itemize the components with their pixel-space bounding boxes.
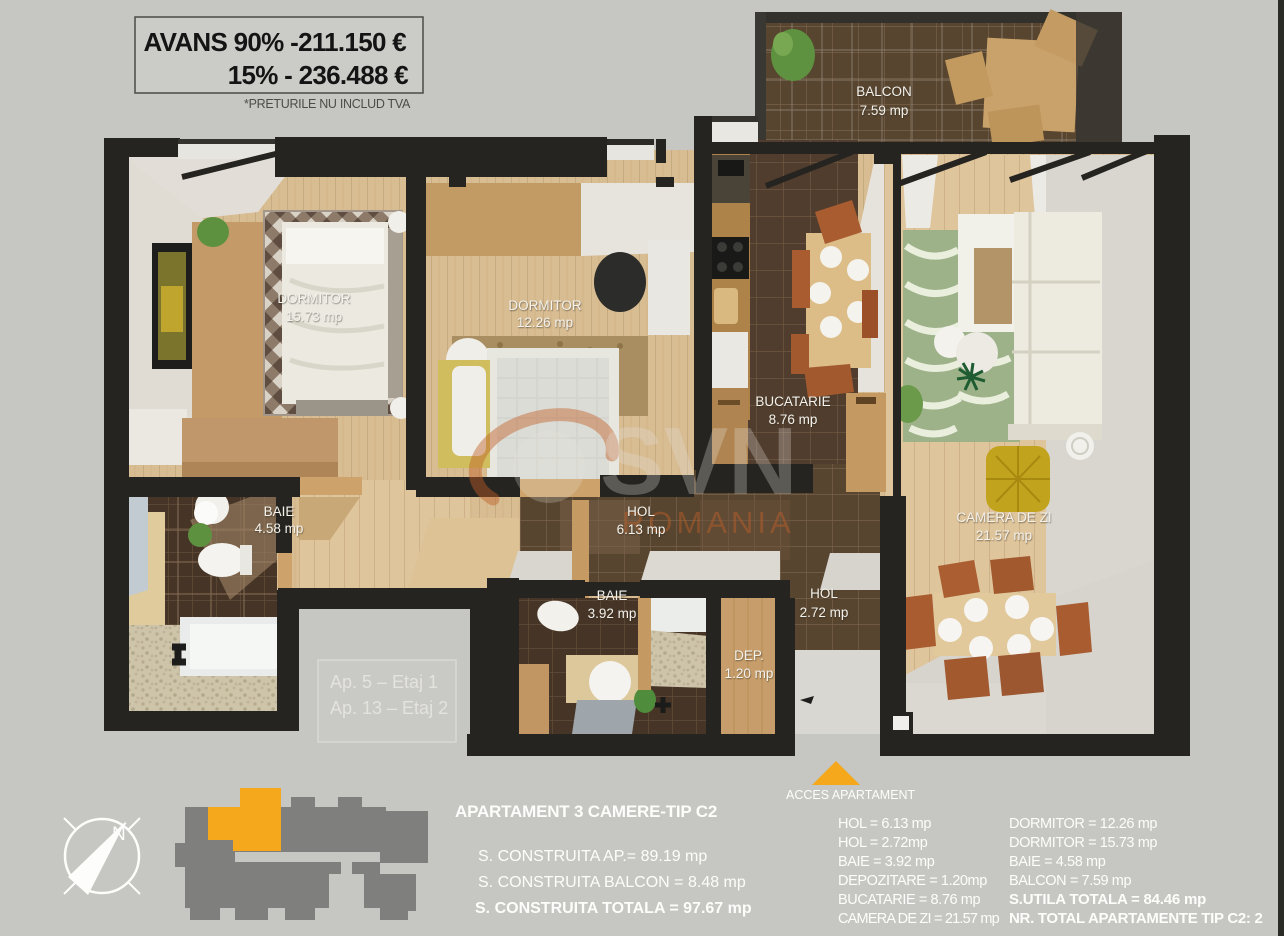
svg-text:S. CONSTRUITA TOTALA = 97.67 m: S. CONSTRUITA TOTALA = 97.67 mp	[475, 900, 752, 917]
svg-text:BALCON = 7.59 mp: BALCON = 7.59 mp	[1009, 873, 1131, 889]
svg-text:BAIE = 3.92 mp: BAIE = 3.92 mp	[838, 854, 935, 870]
svg-text:AVANS 90% -211.150 €: AVANS 90% -211.150 €	[143, 27, 406, 57]
svg-text:15.73 mp: 15.73 mp	[286, 309, 342, 324]
svg-text:HOL: HOL	[810, 586, 838, 601]
svg-text:DORMITOR: DORMITOR	[508, 298, 581, 313]
svg-text:S. CONSTRUITA BALCON = 8.48 mp: S. CONSTRUITA BALCON = 8.48 mp	[478, 874, 746, 891]
svg-text:N: N	[112, 824, 126, 845]
svg-text:ACCES APARTAMENT: ACCES APARTAMENT	[786, 788, 916, 802]
svg-text:2.72 mp: 2.72 mp	[800, 605, 849, 620]
svg-text:CAMERA DE ZI = 21.57 mp: CAMERA DE ZI = 21.57 mp	[838, 911, 1000, 927]
svg-text:BALCON: BALCON	[856, 84, 912, 99]
svg-text:NR. TOTAL APARTAMENTE TIP C2:: NR. TOTAL APARTAMENTE TIP C2: 2	[1009, 910, 1263, 927]
svg-text:DORMITOR = 12.26 mp: DORMITOR = 12.26 mp	[1009, 816, 1157, 832]
svg-text:HOL = 2.72mp: HOL = 2.72mp	[838, 835, 928, 851]
svg-text:DEP.: DEP.	[734, 648, 764, 663]
svg-text:DEPOZITARE = 1.20mp: DEPOZITARE = 1.20mp	[838, 873, 987, 889]
svg-text:Ap. 5 – Etaj 1: Ap. 5 – Etaj 1	[330, 672, 438, 692]
svg-text:HOL: HOL	[627, 504, 655, 519]
svg-text:DORMITOR = 15.73 mp: DORMITOR = 15.73 mp	[1009, 835, 1157, 851]
svg-text:BAIE = 4.58 mp: BAIE = 4.58 mp	[1009, 854, 1106, 870]
svg-text:BAIE: BAIE	[597, 588, 628, 603]
svg-text:3.92 mp: 3.92 mp	[588, 606, 637, 621]
svg-text:8.76 mp: 8.76 mp	[769, 412, 818, 427]
svg-text:*PRETURILE NU INCLUD TVA: *PRETURILE NU INCLUD TVA	[244, 97, 411, 111]
svg-text:Ap. 13 – Etaj 2: Ap. 13 – Etaj 2	[330, 698, 448, 718]
svg-text:1.20 mp: 1.20 mp	[725, 666, 774, 681]
svg-text:12.26 mp: 12.26 mp	[517, 315, 573, 330]
svg-text:BAIE: BAIE	[264, 504, 295, 519]
svg-text:APARTAMENT 3 CAMERE-TIP C2: APARTAMENT 3 CAMERE-TIP C2	[455, 802, 717, 821]
svg-text:6.13 mp: 6.13 mp	[617, 522, 666, 537]
svg-text:CAMERA DE ZI: CAMERA DE ZI	[956, 510, 1051, 525]
svg-text:HOL = 6.13 mp: HOL = 6.13 mp	[838, 816, 931, 832]
svg-text:S.UTILA TOTALA = 84.46 mp: S.UTILA TOTALA = 84.46 mp	[1009, 891, 1206, 908]
svg-text:DORMITOR: DORMITOR	[277, 291, 350, 306]
svg-text:S. CONSTRUITA AP.= 89.19 mp: S. CONSTRUITA AP.= 89.19 mp	[478, 848, 707, 865]
svg-text:4.58 mp: 4.58 mp	[255, 521, 304, 536]
svg-text:BUCATARIE: BUCATARIE	[755, 394, 830, 409]
svg-text:BUCATARIE = 8.76 mp: BUCATARIE = 8.76 mp	[838, 892, 980, 908]
svg-text:21.57 mp: 21.57 mp	[976, 528, 1032, 543]
svg-text:7.59 mp: 7.59 mp	[860, 103, 909, 118]
svg-text:15% - 236.488 €: 15% - 236.488 €	[228, 60, 409, 90]
